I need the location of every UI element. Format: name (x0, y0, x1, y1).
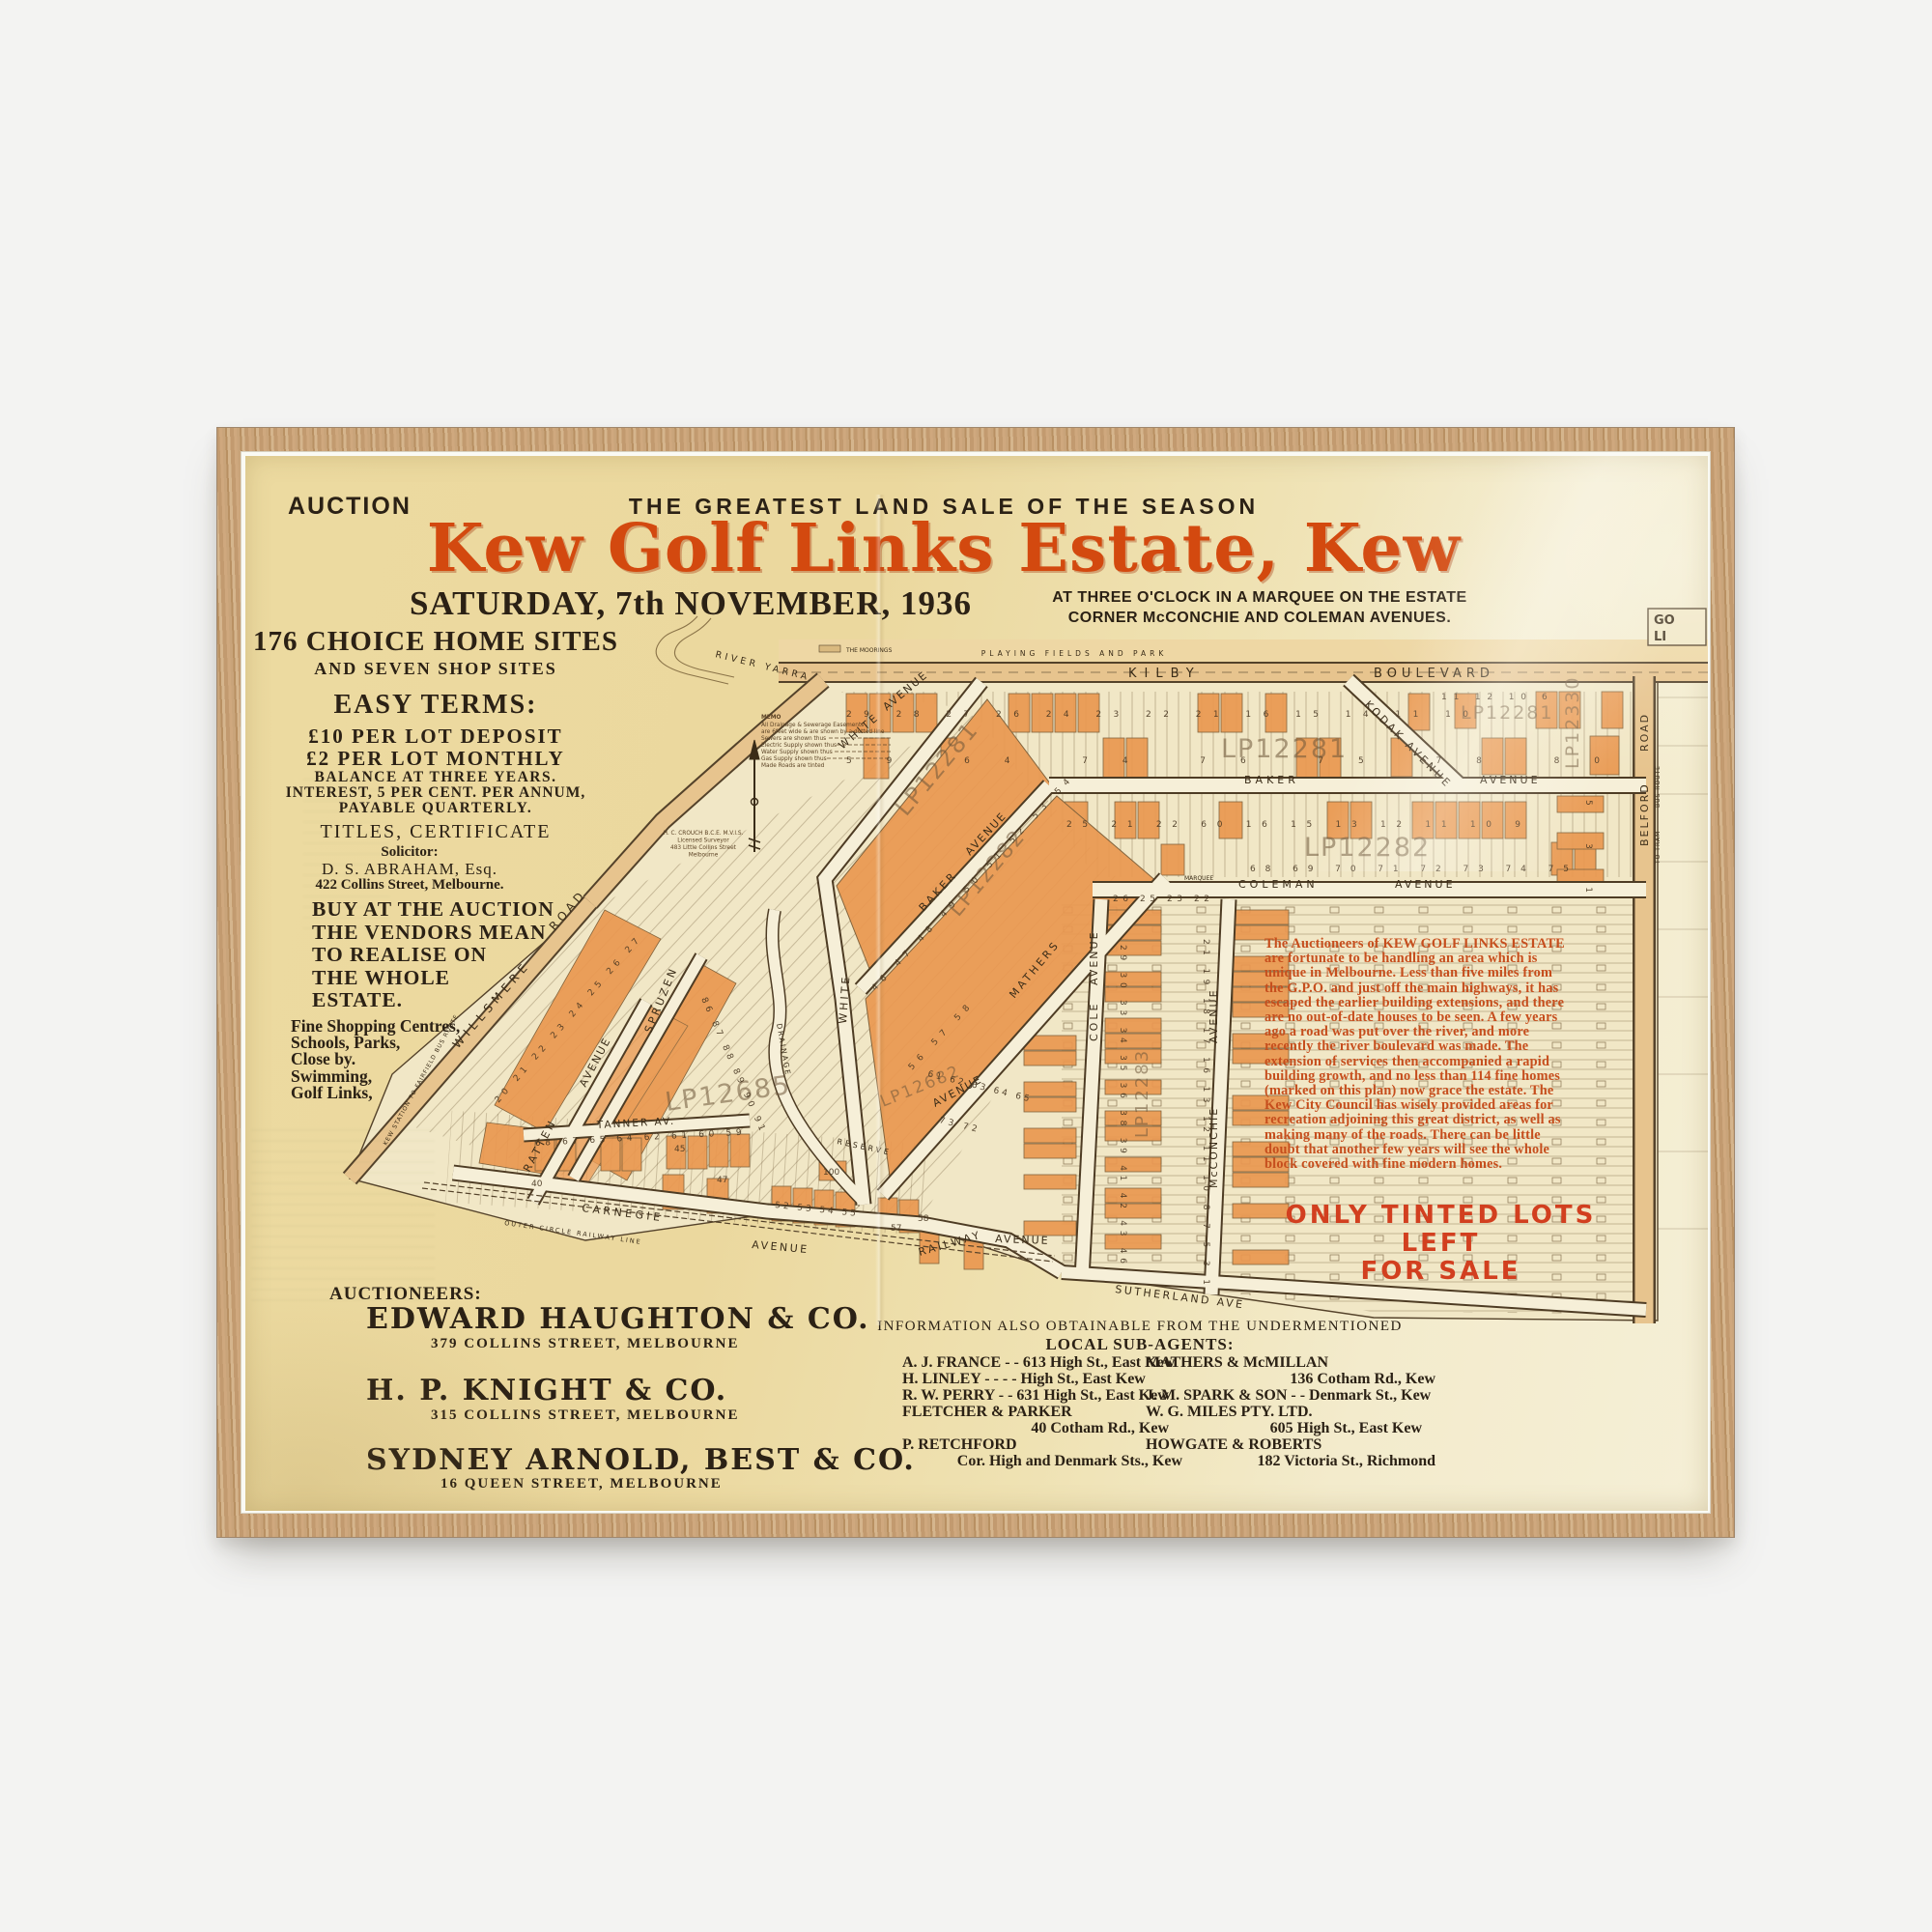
product-photo: GO LI PLAYING FIELDS AND PARK RIVER YARR… (0, 0, 1932, 1932)
agent-line: MATHERS & McMILLAN (1146, 1354, 1435, 1371)
label-baker-avenue-word: AVENUE (1480, 774, 1541, 786)
svg-text:H. C. CROUCH B.C.E. M.V.I.S.: H. C. CROUCH B.C.E. M.V.I.S. (664, 831, 744, 837)
agents-info-line: INFORMATION ALSO OBTAINABLE FROM THE UND… (850, 1319, 1430, 1335)
svg-text:Sewers are shown thus: Sewers are shown thus (761, 736, 826, 742)
svg-text:6: 6 (1542, 693, 1548, 702)
label-boulevard: BOULEVARD (1374, 667, 1494, 681)
agents-heading: LOCAL SUB-AGENTS: (850, 1335, 1430, 1354)
lp-12281-small: LP12281 (1461, 702, 1554, 724)
svg-text:100: 100 (823, 1168, 839, 1178)
label-railway-avenue: AVENUE (995, 1233, 1050, 1247)
label-moorings: THE MOORINGS (845, 647, 893, 654)
deposit-line: £10 PER LOT DEPOSIT (245, 724, 626, 749)
svg-text:All Drainage & Sewerage Easeme: All Drainage & Sewerage Easements (761, 723, 864, 728)
moorings-mark (819, 645, 840, 652)
lp-12283: LP12283 (1132, 1049, 1152, 1138)
svg-text:58: 58 (918, 1214, 929, 1224)
svg-text:Licensed Surveyor: Licensed Surveyor (677, 838, 729, 844)
golf-links-sign: GO LI (1648, 609, 1706, 645)
agent-line: 182 Victoria St., Richmond (1146, 1453, 1435, 1469)
east-of-belford-blocks (1658, 697, 1708, 1229)
svg-text:45: 45 (674, 1145, 685, 1154)
label-cole-avenue: AVENUE (1088, 930, 1100, 985)
sites-heading: 176 CHOICE HOME SITES (245, 626, 626, 658)
svg-text:GO: GO (1654, 613, 1675, 628)
agent-line: 605 High St., East Kew (1146, 1420, 1435, 1436)
estate-description: The Auctioneers of KEW GOLF LINKS ESTATE… (1264, 937, 1598, 1172)
svg-text:LI: LI (1654, 630, 1666, 644)
titles-line: TITLES, CERTIFICATE (245, 821, 626, 843)
svg-text:47: 47 (717, 1176, 727, 1185)
buy-at-auction: BUY AT THE AUCTION THE VENDORS MEAN TO R… (312, 898, 554, 1012)
agent-line: 136 Cotham Rd., Kew (1146, 1371, 1435, 1387)
svg-text:are 6feet wide & are shown by: are 6feet wide & are shown by a dotted l… (761, 729, 885, 735)
svg-text:MEMO: MEMO (761, 715, 781, 721)
tinted-lots-notice: ONLY TINTED LOTS LEFT FOR SALE (1274, 1202, 1607, 1286)
label-marquee: MARQUEE (1184, 875, 1213, 882)
svg-text:483 Little Collins Street: 483 Little Collins Street (670, 845, 737, 851)
payable-line: PAYABLE QUARTERLY. (245, 800, 626, 817)
label-baker: BAKER (1244, 774, 1299, 786)
easy-terms-heading: EASY TERMS: (245, 690, 626, 721)
sites-sub: AND SEVEN SHOP SITES (245, 659, 626, 679)
auction-date: SATURDAY, 7th NOVEMBER, 1936 (401, 584, 980, 623)
label-to-tram: TO TRAM (1655, 831, 1662, 865)
agent-line: HOWGATE & ROBERTS (1146, 1436, 1435, 1453)
solicitor-address: 422 Collins Street, Melbourne. (245, 877, 574, 894)
picture-frame: GO LI PLAYING FIELDS AND PARK RIVER YARR… (216, 427, 1735, 1538)
label-belford-road-word: ROAD (1638, 713, 1651, 752)
auctioneer-1-address: 379 COLLINS STREET, MELBOURNE (431, 1336, 739, 1352)
label-cole: COLE (1088, 1002, 1100, 1041)
svg-text:Water Supply shown thus: Water Supply shown thus (761, 750, 833, 755)
agents-right-column: MATHERS & McMILLAN 136 Cotham Rd., Kew J… (1146, 1354, 1435, 1469)
auctioneer-2-address: 315 COLLINS STREET, MELBOURNE (431, 1407, 739, 1424)
svg-text:Gas Supply shown thus: Gas Supply shown thus (761, 756, 827, 762)
label-bus-route: BUS ROUTE (1655, 765, 1662, 808)
poster-title: Kew Golf Links Estate, Kew (268, 510, 1620, 587)
svg-text:Made Roads are tinted: Made Roads are tinted (761, 763, 825, 769)
svg-text:26 25 23 22: 26 25 23 22 (1113, 895, 1209, 904)
svg-text:40: 40 (531, 1179, 543, 1189)
agent-line: W. G. MILES PTY. LTD. (1146, 1404, 1435, 1420)
auctioneer-2-name: H. P. KNIGHT & CO. (366, 1374, 727, 1407)
monthly-line: £2 PER LOT MONTHLY (245, 747, 626, 771)
solicitor-label: Solicitor: (245, 844, 574, 861)
label-carnegie-avenue: AVENUE (752, 1238, 810, 1256)
auction-time: AT THREE O'CLOCK IN A MARQUEE ON THE EST… (1018, 587, 1501, 628)
auctioneer-1-name: EDWARD HAUGHTON & CO. (366, 1302, 870, 1336)
lp-12282-big: LP12282 (1304, 833, 1431, 863)
auctioneer-3-name: SYDNEY ARNOLD, BEST & CO. (366, 1443, 916, 1477)
svg-text:Electric Supply shown thus: Electric Supply shown thus (761, 743, 837, 749)
label-mcconchie-avenue: AVENUE (1207, 988, 1220, 1043)
label-coleman-avenue-word: AVENUE (1395, 878, 1456, 891)
svg-text:68 69 70 71 72 73 74 75: 68 69 70 71 72 73 74 75 (1250, 865, 1569, 874)
label-kilby: KILBY (1128, 667, 1202, 681)
auctioneer-3-address: 16 QUEEN STREET, MELBOURNE (440, 1476, 723, 1492)
lp-12330: LP12330 (1562, 676, 1583, 770)
label-belford: BELFORD (1638, 782, 1651, 846)
agent-line: J. M. SPARK & SON - - Denmark St., Kew (1146, 1387, 1435, 1404)
auction-poster: GO LI PLAYING FIELDS AND PARK RIVER YARR… (245, 456, 1708, 1511)
label-playing-fields: PLAYING FIELDS AND PARK (981, 649, 1168, 658)
label-coleman: COLEMAN (1238, 878, 1319, 891)
svg-text:Melbourne: Melbourne (689, 853, 719, 859)
amenities: Fine Shopping Centres, Schools, Parks, C… (291, 1018, 460, 1101)
svg-text:57: 57 (891, 1224, 901, 1234)
solicitor-name: D. S. ABRAHAM, Esq. (245, 860, 574, 879)
